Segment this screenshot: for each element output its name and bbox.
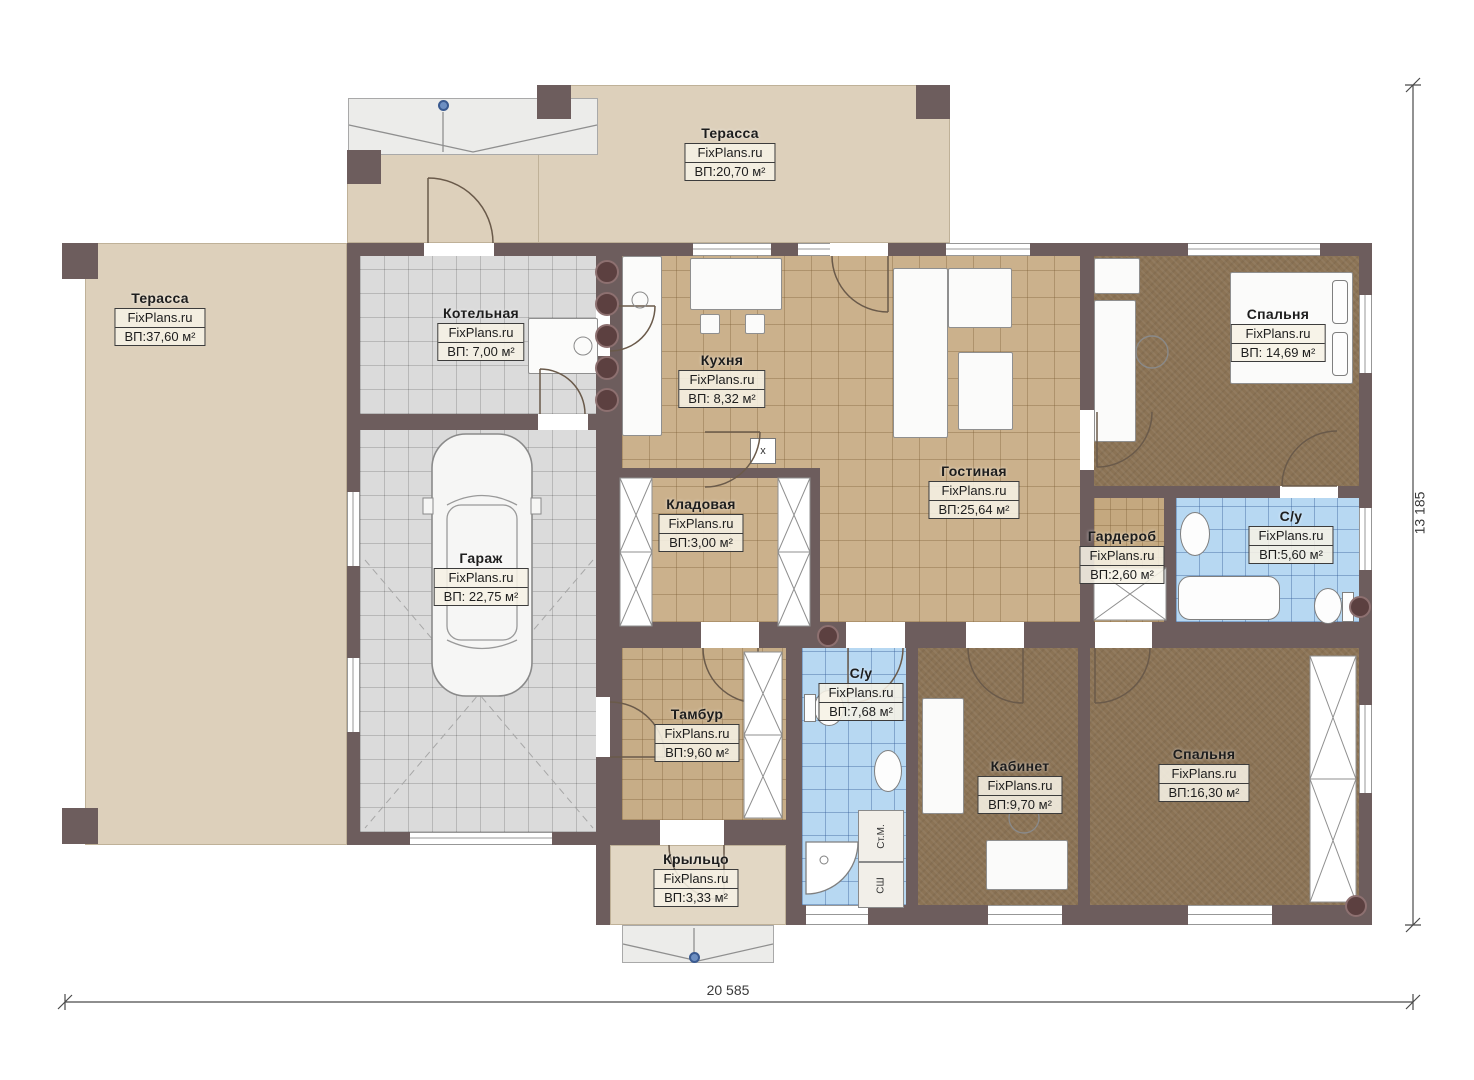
label-bath2: С/у FixPlans.ruВП:7,68 м²: [818, 665, 903, 721]
room-area: ВП: 22,75 м²: [435, 588, 528, 606]
brand-link[interactable]: FixPlans.ru: [654, 870, 737, 889]
label-bath1: С/у FixPlans.ruВП:5,60 м²: [1248, 508, 1333, 564]
floor-plan: Ст.М. СШ х: [0, 0, 1474, 1080]
room-title: Тамбур: [654, 706, 739, 722]
label-kitchen: Кухня FixPlans.ruВП: 8,32 м²: [678, 352, 765, 408]
brand-link[interactable]: FixPlans.ru: [659, 515, 742, 534]
dimension-bottom: 20 585: [707, 982, 750, 998]
room-title: Терасса: [114, 290, 205, 306]
brand-link[interactable]: FixPlans.ru: [685, 144, 774, 163]
room-area: ВП: 7,00 м²: [438, 343, 523, 361]
room-area: ВП:2,60 м²: [1080, 566, 1163, 584]
shower: [806, 842, 858, 894]
label-bedroom1: Спальня FixPlans.ruВП: 14,69 м²: [1231, 306, 1326, 362]
label-bedroom2: Спальня FixPlans.ruВП:16,30 м²: [1158, 746, 1249, 802]
label-wardrobe: Гардероб FixPlans.ruВП:2,60 м²: [1079, 528, 1164, 584]
label-tambur: Тамбур FixPlans.ruВП:9,60 м²: [654, 706, 739, 762]
room-title: С/у: [818, 665, 903, 681]
steps-marker: [689, 952, 700, 963]
label-garage: Гараж FixPlans.ruВП: 22,75 м²: [434, 550, 529, 606]
brand-link[interactable]: FixPlans.ru: [438, 324, 523, 343]
room-title: Гардероб: [1079, 528, 1164, 544]
room-area: ВП:9,70 м²: [978, 796, 1061, 814]
room-title: Гостиная: [928, 463, 1019, 479]
brand-link[interactable]: FixPlans.ru: [929, 482, 1018, 501]
room-area: ВП:7,68 м²: [819, 703, 902, 721]
brand-link[interactable]: FixPlans.ru: [1232, 325, 1325, 344]
label-terrace-left: Терасса FixPlans.ruВП:37,60 м²: [114, 290, 205, 346]
room-area: ВП:37,60 м²: [115, 328, 204, 346]
room-title: С/у: [1248, 508, 1333, 524]
room-title: Спальня: [1158, 746, 1249, 762]
room-area: ВП: 14,69 м²: [1232, 344, 1325, 362]
brand-link[interactable]: FixPlans.ru: [655, 725, 738, 744]
brand-link[interactable]: FixPlans.ru: [679, 371, 764, 390]
brand-link[interactable]: FixPlans.ru: [435, 569, 528, 588]
label-terrace-top: Терасса FixPlans.ruВП:20,70 м²: [684, 125, 775, 181]
room-area: ВП:9,60 м²: [655, 744, 738, 762]
room-title: Кабинет: [977, 758, 1062, 774]
room-area: ВП:5,60 м²: [1249, 546, 1332, 564]
label-living: Гостиная FixPlans.ruВП:25,64 м²: [928, 463, 1019, 519]
room-area: ВП:25,64 м²: [929, 501, 1018, 519]
room-area: ВП:3,00 м²: [659, 534, 742, 552]
room-area: ВП:16,30 м²: [1159, 784, 1248, 802]
room-title: Кладовая: [658, 496, 743, 512]
room-area: ВП:3,33 м²: [654, 889, 737, 907]
label-boiler: Котельная FixPlans.ruВП: 7,00 м²: [437, 305, 524, 361]
room-title: Кухня: [678, 352, 765, 368]
brand-link[interactable]: FixPlans.ru: [1249, 527, 1332, 546]
label-pantry: Кладовая FixPlans.ruВП:3,00 м²: [658, 496, 743, 552]
room-title: Терасса: [684, 125, 775, 141]
room-title: Крыльцо: [653, 851, 738, 867]
room-title: Котельная: [437, 305, 524, 321]
brand-link[interactable]: FixPlans.ru: [819, 684, 902, 703]
room-title: Гараж: [434, 550, 529, 566]
dimension-right: 13 185: [1411, 492, 1427, 535]
brand-link[interactable]: FixPlans.ru: [978, 777, 1061, 796]
brand-link[interactable]: FixPlans.ru: [1159, 765, 1248, 784]
label-office: Кабинет FixPlans.ruВП:9,70 м²: [977, 758, 1062, 814]
label-porch: Крыльцо FixPlans.ruВП:3,33 м²: [653, 851, 738, 907]
brand-link[interactable]: FixPlans.ru: [115, 309, 204, 328]
room-title: Спальня: [1231, 306, 1326, 322]
brand-link[interactable]: FixPlans.ru: [1080, 547, 1163, 566]
ramp-marker: [438, 100, 449, 111]
room-area: ВП:20,70 м²: [685, 163, 774, 181]
room-area: ВП: 8,32 м²: [679, 390, 764, 408]
